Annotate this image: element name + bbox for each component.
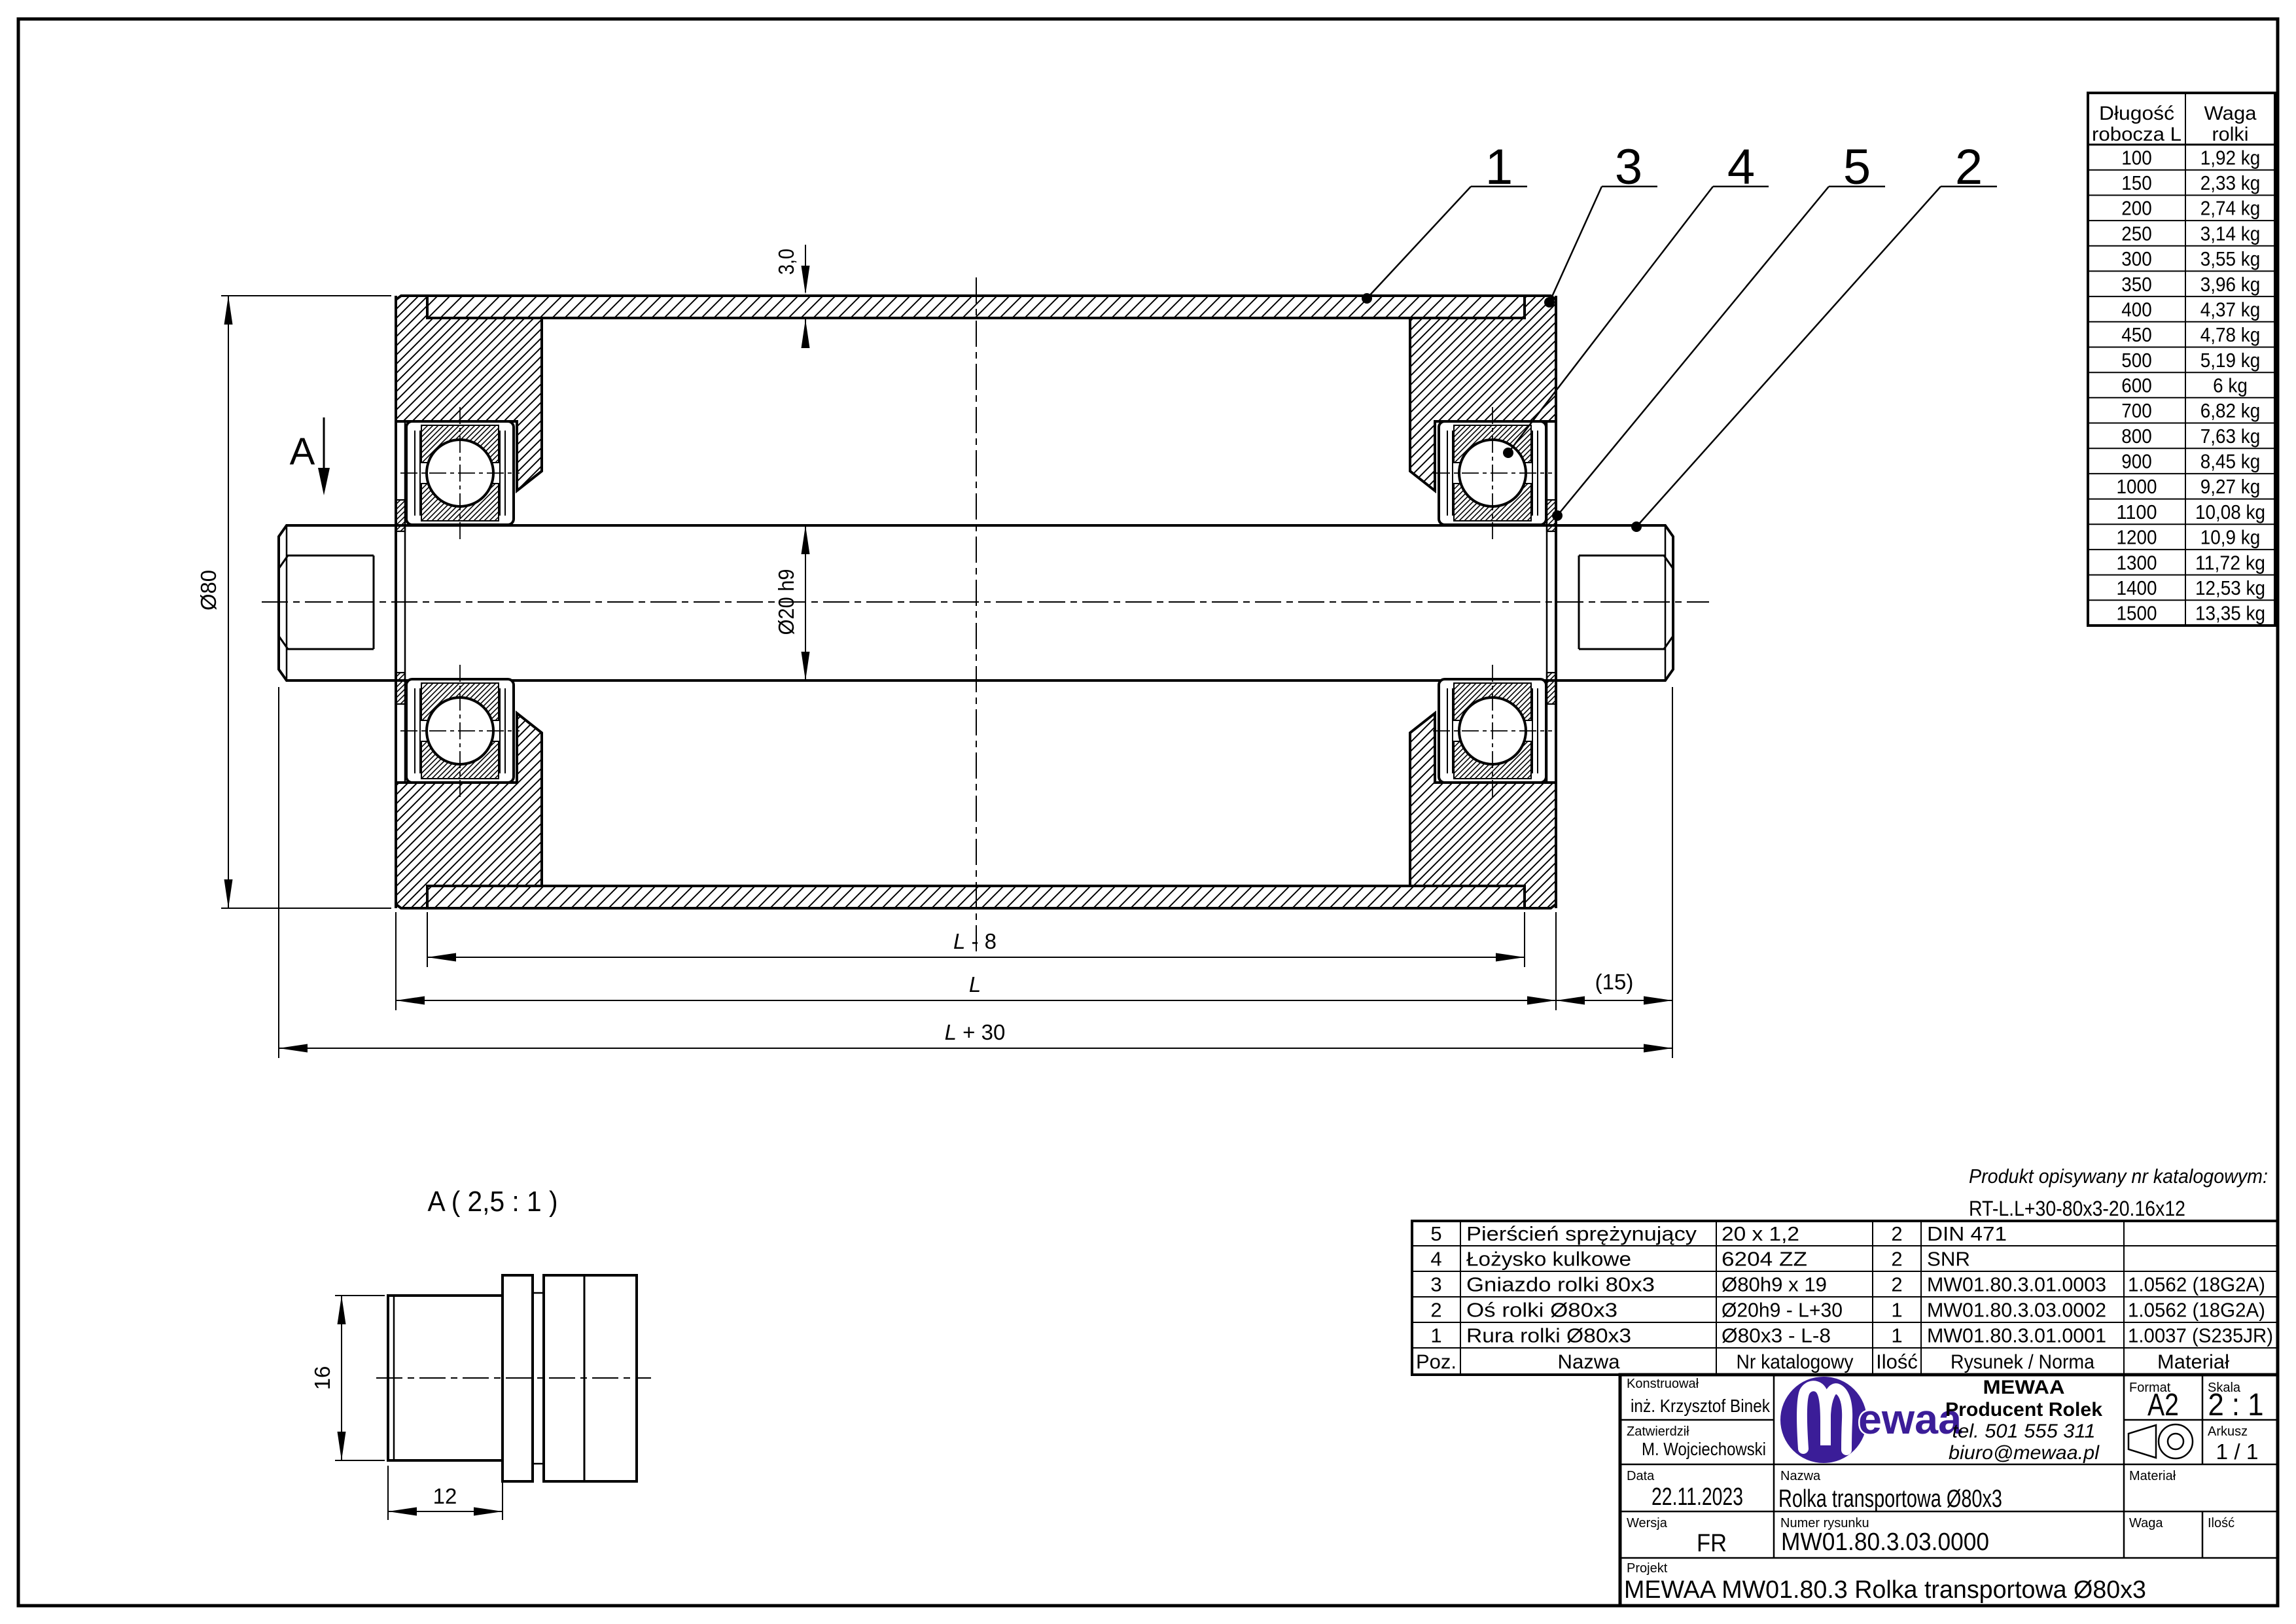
svg-text:1000: 1000 — [2117, 475, 2157, 498]
svg-text:22.11.2023: 22.11.2023 — [1651, 1483, 1743, 1511]
svg-text:300: 300 — [2121, 247, 2152, 270]
svg-text:Waga: Waga — [2129, 1516, 2163, 1530]
svg-text:Ø80: Ø80 — [196, 570, 221, 610]
svg-text:Gniazdo rolki 80x3: Gniazdo rolki 80x3 — [1466, 1273, 1655, 1296]
svg-text:6,82 kg: 6,82 kg — [2200, 399, 2261, 422]
svg-text:5: 5 — [1430, 1222, 1441, 1245]
svg-text:2: 2 — [1891, 1273, 1902, 1296]
svg-text:Nazwa: Nazwa — [1780, 1469, 1821, 1483]
svg-text:1300: 1300 — [2117, 551, 2157, 574]
svg-text:Produkt opisywany nr katalogow: Produkt opisywany nr katalogowym: — [1969, 1165, 2268, 1188]
svg-text:A: A — [290, 431, 315, 473]
svg-text:MEWAA MW01.80.3 Rolka transpor: MEWAA MW01.80.3 Rolka transportowa Ø80x3 — [1624, 1576, 2146, 1604]
svg-text:DIN 471: DIN 471 — [1927, 1222, 2007, 1245]
svg-text:Materiał: Materiał — [2129, 1469, 2176, 1483]
svg-text:Projekt: Projekt — [1627, 1561, 1668, 1576]
svg-text:2,33 kg: 2,33 kg — [2200, 171, 2261, 194]
svg-text:1200: 1200 — [2117, 526, 2157, 549]
svg-text:2,74 kg: 2,74 kg — [2200, 197, 2261, 220]
svg-text:150: 150 — [2121, 171, 2152, 194]
svg-text:Zatwierdził: Zatwierdził — [1627, 1424, 1689, 1439]
svg-text:robocza L: robocza L — [2092, 124, 2181, 145]
svg-text:Nazwa: Nazwa — [1558, 1350, 1621, 1373]
svg-text:6204 ZZ: 6204 ZZ — [1722, 1248, 1807, 1271]
svg-text:450: 450 — [2121, 323, 2152, 346]
svg-text:biuro@mewaa.pl: biuro@mewaa.pl — [1949, 1442, 2100, 1464]
svg-text:Wersja: Wersja — [1627, 1516, 1668, 1530]
svg-text:MW01.80.3.03.0000: MW01.80.3.03.0000 — [1781, 1528, 1989, 1556]
svg-text:Data: Data — [1627, 1469, 1655, 1483]
svg-text:A ( 2,5 : 1 ): A ( 2,5 : 1 ) — [428, 1186, 558, 1218]
svg-text:Łożysko kulkowe: Łożysko kulkowe — [1466, 1248, 1631, 1271]
svg-text:9,27 kg: 9,27 kg — [2200, 475, 2261, 498]
svg-text:A2: A2 — [2147, 1388, 2179, 1422]
svg-text:Materiał: Materiał — [2157, 1350, 2229, 1373]
svg-text:Konstruował: Konstruował — [1627, 1377, 1699, 1391]
svg-text:Rysunek / Norma: Rysunek / Norma — [1951, 1350, 2095, 1373]
svg-text:2: 2 — [1430, 1299, 1441, 1322]
svg-text:350: 350 — [2121, 273, 2152, 296]
svg-text:600: 600 — [2121, 374, 2152, 397]
svg-text:Ilość: Ilość — [2208, 1516, 2234, 1530]
svg-text:8,45 kg: 8,45 kg — [2200, 450, 2261, 473]
svg-text:L + 30: L + 30 — [945, 1020, 1006, 1044]
svg-text:Ø20 h9: Ø20 h9 — [774, 569, 798, 635]
svg-text:1.0037 (S235JR): 1.0037 (S235JR) — [2128, 1324, 2273, 1347]
svg-text:4,37 kg: 4,37 kg — [2200, 298, 2261, 321]
svg-text:Ø80x3 - L-8: Ø80x3 - L-8 — [1722, 1324, 1831, 1347]
svg-text:11,72 kg: 11,72 kg — [2195, 551, 2265, 574]
svg-text:3,0: 3,0 — [774, 249, 798, 275]
svg-text:10,08 kg: 10,08 kg — [2195, 501, 2265, 523]
svg-text:MW01.80.3.01.0001: MW01.80.3.01.0001 — [1927, 1324, 2106, 1347]
svg-text:2 : 1: 2 : 1 — [2208, 1388, 2264, 1422]
svg-text:800: 800 — [2121, 425, 2152, 448]
svg-text:12,53 kg: 12,53 kg — [2195, 576, 2265, 599]
svg-text:SNR: SNR — [1927, 1248, 1970, 1271]
svg-text:1 / 1: 1 / 1 — [2216, 1439, 2259, 1464]
svg-text:3: 3 — [1430, 1273, 1441, 1296]
svg-text:1: 1 — [1430, 1324, 1441, 1347]
svg-text:3,14 kg: 3,14 kg — [2200, 222, 2261, 245]
svg-text:Waga: Waga — [2204, 103, 2257, 124]
svg-text:Arkusz: Arkusz — [2208, 1424, 2248, 1439]
svg-text:200: 200 — [2121, 197, 2152, 220]
svg-text:6 kg: 6 kg — [2213, 374, 2248, 397]
svg-text:MEWAA: MEWAA — [1983, 1377, 2065, 1398]
svg-text:Producent Rolek: Producent Rolek — [1945, 1399, 2102, 1421]
svg-text:Poz.: Poz. — [1416, 1350, 1457, 1373]
svg-text:inż. Krzysztof Binek: inż. Krzysztof Binek — [1631, 1396, 1771, 1416]
svg-text:2: 2 — [1891, 1248, 1902, 1271]
svg-text:100: 100 — [2121, 146, 2152, 169]
svg-text:Długość: Długość — [2099, 103, 2174, 124]
svg-text:Oś rolki Ø80x3: Oś rolki Ø80x3 — [1466, 1299, 1617, 1322]
svg-text:4: 4 — [1430, 1248, 1441, 1271]
svg-text:1100: 1100 — [2117, 501, 2157, 523]
svg-text:L: L — [969, 972, 981, 997]
svg-text:5,19 kg: 5,19 kg — [2200, 349, 2261, 372]
svg-text:10,9 kg: 10,9 kg — [2200, 526, 2261, 549]
svg-text:tel. 501 555 311: tel. 501 555 311 — [1952, 1421, 2096, 1442]
svg-text:500: 500 — [2121, 349, 2152, 372]
svg-text:Ilość: Ilość — [1876, 1350, 1918, 1373]
svg-text:L - 8: L - 8 — [953, 929, 997, 953]
svg-text:Ø20h9 - L+30: Ø20h9 - L+30 — [1722, 1299, 1843, 1322]
svg-text:1.0562 (18G2A): 1.0562 (18G2A) — [2128, 1299, 2265, 1322]
svg-text:Rura rolki Ø80x3: Rura rolki Ø80x3 — [1466, 1324, 1631, 1347]
svg-text:4,78 kg: 4,78 kg — [2200, 323, 2261, 346]
svg-text:rolki: rolki — [2212, 124, 2249, 145]
svg-text:1: 1 — [1891, 1324, 1902, 1347]
svg-text:900: 900 — [2121, 450, 2152, 473]
svg-text:Pierścień sprężynujący: Pierścień sprężynujący — [1466, 1222, 1697, 1245]
svg-text:Ø80h9 x 19: Ø80h9 x 19 — [1722, 1273, 1827, 1296]
svg-text:Rolka transportowa Ø80x3: Rolka transportowa Ø80x3 — [1778, 1485, 2002, 1513]
svg-text:700: 700 — [2121, 399, 2152, 422]
svg-text:3,55 kg: 3,55 kg — [2200, 247, 2261, 270]
svg-text:FR: FR — [1697, 1530, 1727, 1557]
svg-text:MW01.80.3.01.0003: MW01.80.3.01.0003 — [1927, 1273, 2106, 1296]
svg-text:Nr katalogowy: Nr katalogowy — [1737, 1350, 1854, 1373]
svg-text:1400: 1400 — [2117, 576, 2157, 599]
svg-text:1500: 1500 — [2117, 602, 2157, 625]
svg-text:400: 400 — [2121, 298, 2152, 321]
svg-text:RT-L.L+30-80x3-20.16x12: RT-L.L+30-80x3-20.16x12 — [1969, 1197, 2185, 1220]
svg-text:MW01.80.3.03.0002: MW01.80.3.03.0002 — [1927, 1299, 2106, 1322]
svg-text:1.0562 (18G2A): 1.0562 (18G2A) — [2128, 1273, 2265, 1296]
svg-text:3,96 kg: 3,96 kg — [2200, 273, 2261, 296]
svg-text:250: 250 — [2121, 222, 2152, 245]
svg-text:M. Wojciechowski: M. Wojciechowski — [1642, 1439, 1766, 1459]
svg-text:16: 16 — [310, 1366, 334, 1390]
svg-text:20 x 1,2: 20 x 1,2 — [1722, 1222, 1799, 1245]
svg-text:1: 1 — [1891, 1299, 1902, 1322]
svg-text:(15): (15) — [1595, 970, 1634, 994]
svg-text:13,35 kg: 13,35 kg — [2195, 602, 2265, 625]
svg-text:2: 2 — [1891, 1222, 1902, 1245]
svg-text:12: 12 — [433, 1484, 457, 1508]
svg-text:7,63 kg: 7,63 kg — [2200, 425, 2261, 448]
svg-text:1,92 kg: 1,92 kg — [2200, 146, 2261, 169]
